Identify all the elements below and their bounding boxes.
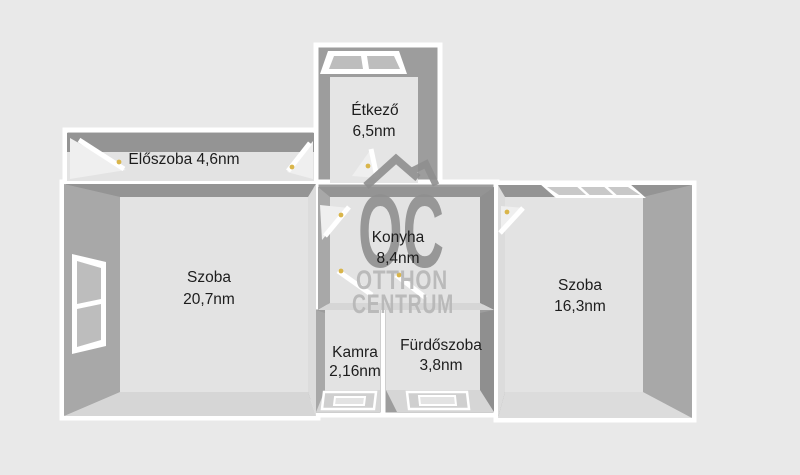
- window-pane: [329, 56, 363, 69]
- door-handle: [290, 165, 295, 170]
- label-eloszoba: Előszoba 4,6nm: [128, 151, 239, 168]
- label-furdoszoba-name: Fürdőszoba: [400, 337, 482, 354]
- room-szoba-right-floor: [505, 197, 643, 392]
- door-handle: [339, 269, 344, 274]
- konyha-right-face: [480, 187, 494, 310]
- watermark-brand-line2: CENTRUM: [352, 289, 454, 319]
- label-szoba-right-name: Szoba: [558, 277, 602, 294]
- window-pane: [77, 304, 101, 347]
- window-pane: [77, 261, 101, 304]
- window-szoba-right: [540, 184, 646, 198]
- door-handle: [505, 210, 510, 215]
- window-kamra: [322, 392, 376, 409]
- window-szoba-left: [72, 254, 106, 354]
- label-furdoszoba-area: 3,8nm: [419, 357, 462, 374]
- label-szoba-right-area: 16,3nm: [554, 298, 606, 315]
- door-handle: [366, 164, 371, 169]
- szoba-right-right-face: [643, 185, 692, 418]
- label-kamra-name: Kamra: [332, 344, 378, 361]
- label-konyha-name: Konyha: [372, 229, 425, 246]
- label-szoba-left-area: 20,7nm: [183, 291, 235, 308]
- label-kamra-area: 2,16nm: [329, 363, 381, 380]
- label-szoba-left-name: Szoba: [187, 269, 231, 286]
- floor-plan: OC OTTHON CENTRUM Előszoba 4,6nm Étkező …: [0, 0, 800, 475]
- room-kamra: [316, 310, 380, 412]
- window-pane: [334, 397, 365, 405]
- eloszoba-top-face: [67, 133, 314, 152]
- label-konyha-area: 8,4nm: [376, 250, 419, 267]
- szoba-left-right-face: [308, 184, 316, 416]
- window-etkezo: [320, 51, 407, 74]
- window-pane: [419, 396, 456, 405]
- label-etkezo-name: Étkező: [351, 102, 398, 119]
- door-handle: [117, 160, 122, 165]
- window-furdoszoba: [407, 392, 469, 409]
- window-pane: [547, 187, 640, 195]
- door-handle: [339, 213, 344, 218]
- label-etkezo-area: 6,5nm: [352, 123, 395, 140]
